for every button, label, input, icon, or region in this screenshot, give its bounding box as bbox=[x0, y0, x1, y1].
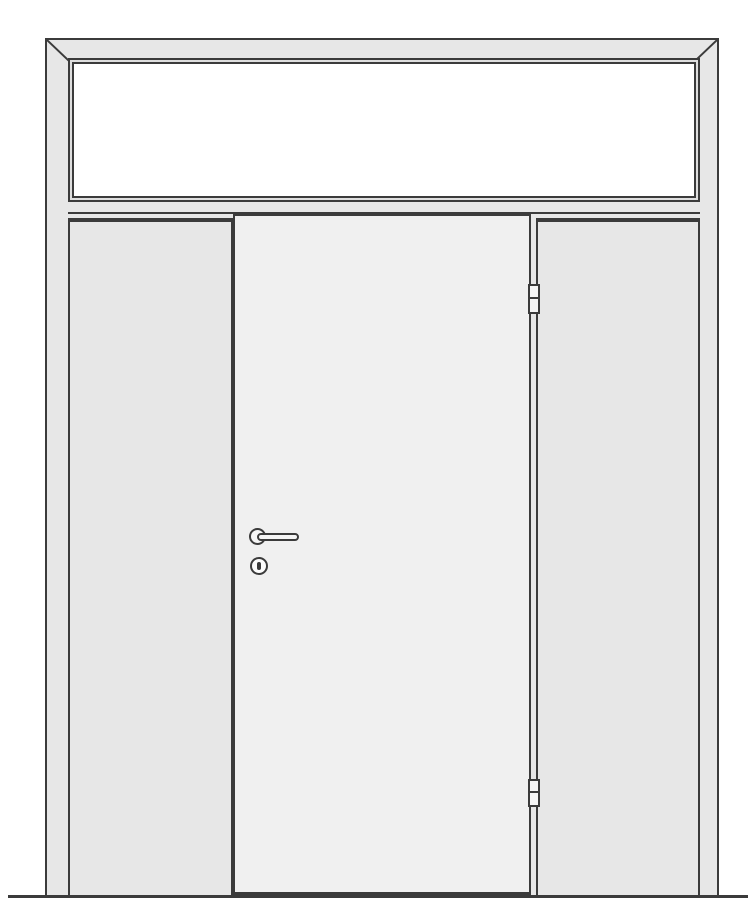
left-sidelight bbox=[68, 218, 233, 897]
door-hinge-bottom-icon bbox=[528, 779, 540, 807]
door-handle-lever-icon bbox=[257, 533, 299, 541]
right-sidelight-glass bbox=[538, 220, 698, 222]
hinge-knuckle-divider bbox=[530, 781, 538, 793]
ground-line bbox=[8, 895, 748, 898]
door-leaf bbox=[233, 214, 531, 897]
transom-window-glass bbox=[68, 58, 700, 202]
transom-bar bbox=[68, 202, 700, 214]
right-sidelight bbox=[536, 218, 700, 897]
keyhole-slot-icon bbox=[257, 562, 261, 570]
door-hinge-top-icon bbox=[528, 284, 540, 314]
left-sidelight-glass bbox=[70, 220, 231, 222]
keyhole-escutcheon-icon bbox=[250, 557, 268, 575]
door-illustration bbox=[0, 0, 750, 917]
hinge-knuckle-divider bbox=[530, 286, 538, 299]
